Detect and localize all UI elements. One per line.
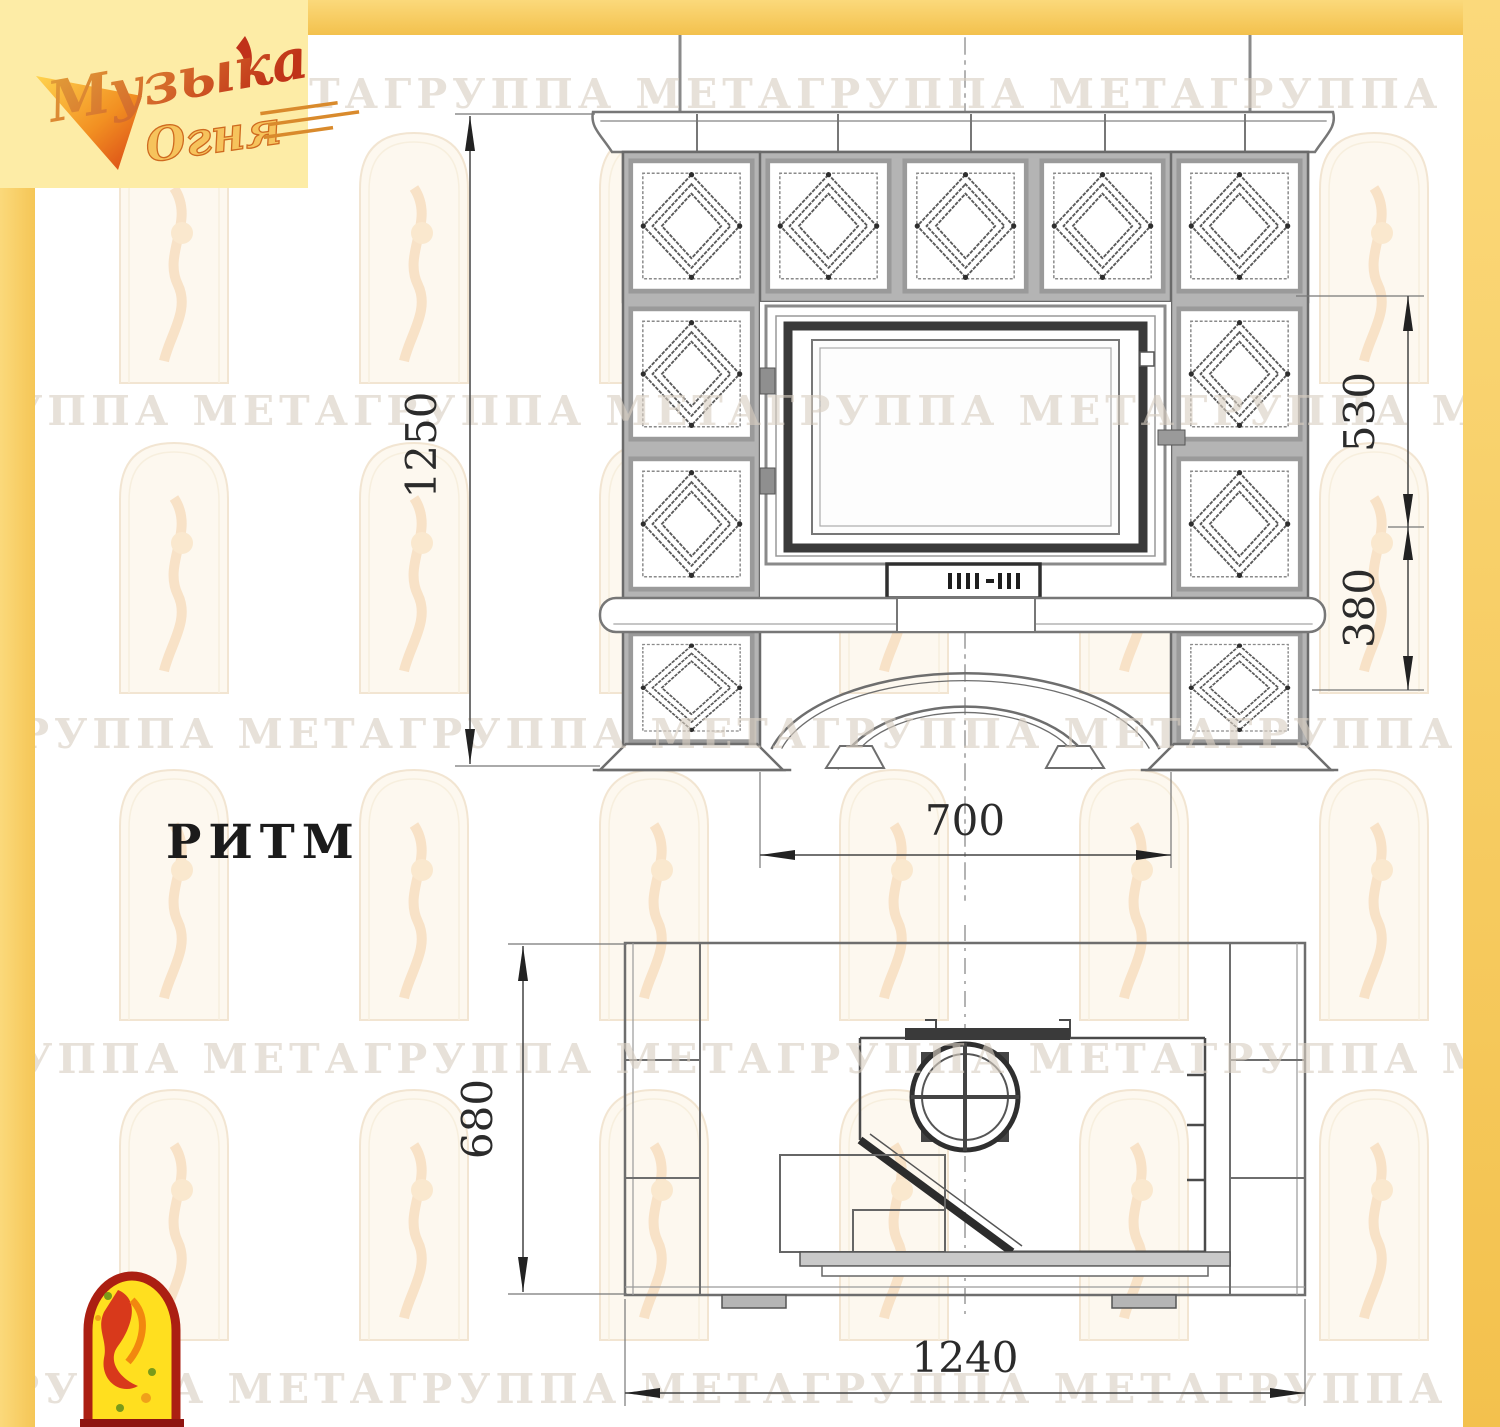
fire-dancer-emblem [80, 1276, 184, 1427]
left-yellow-bar [0, 0, 35, 1427]
dimension-label-380: 380 [1335, 568, 1384, 648]
firebox-console [897, 598, 1035, 632]
front-view [592, 36, 1337, 900]
dimension-label-1240: 1240 [912, 1333, 1019, 1382]
dimension-label-700: 700 [925, 796, 1005, 845]
firebox-door [760, 306, 1185, 564]
plan-view [625, 925, 1305, 1315]
model-title: РИТМ [166, 815, 361, 870]
cornice [592, 112, 1333, 152]
dimension-label-1250: 1250 [397, 392, 446, 499]
door-hinge-bottom [760, 468, 775, 494]
technical-drawing: ГРУППА МЕТАГРУППА МЕТАГРУППА МЕТАГРУППА … [0, 0, 1500, 1427]
watermark-row: ГРУППА МЕТАГРУППА МЕТАГРУППА МЕТАГРУППА … [0, 387, 1500, 435]
vent-grille [887, 564, 1040, 598]
dimension-label-530: 530 [1335, 372, 1384, 452]
door-glass [812, 340, 1119, 534]
catalog-page: ГРУППА МЕТАГРУППА МЕТАГРУППА МЕТАГРУППА … [0, 0, 1500, 1427]
watermark-row: ГРУППА МЕТАГРУППА МЕТАГРУППА МЕТАГРУППА … [0, 710, 1500, 758]
door-latch [1140, 352, 1154, 366]
watermark-row: ГРУППА МЕТАГРУППА МЕТАГРУППА МЕТАГРУППА … [0, 1035, 1500, 1083]
dimension-label-680: 680 [453, 1079, 502, 1159]
right-yellow-bar [1463, 0, 1500, 1427]
